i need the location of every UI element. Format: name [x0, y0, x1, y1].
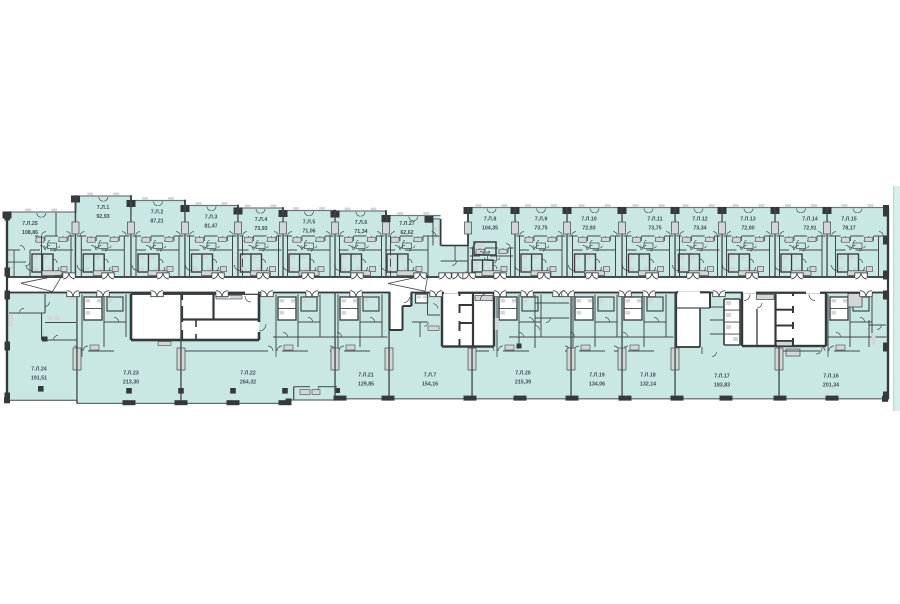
svg-text:72,00: 72,00	[741, 226, 754, 232]
svg-text:134,06: 134,06	[589, 382, 605, 388]
svg-text:129,85: 129,85	[358, 382, 374, 388]
svg-text:7.Л.21: 7.Л.21	[358, 373, 374, 379]
svg-text:7.Л.15: 7.Л.15	[841, 217, 857, 223]
svg-text:7.Л.17: 7.Л.17	[714, 374, 730, 380]
svg-text:7.Л.5: 7.Л.5	[303, 220, 316, 226]
svg-text:62,62: 62,62	[400, 230, 413, 236]
svg-text:71,34: 71,34	[354, 229, 367, 235]
svg-text:73,34: 73,34	[693, 226, 706, 232]
svg-text:7.Л.13: 7.Л.13	[740, 217, 756, 223]
svg-text:7.Л.11: 7.Л.11	[647, 217, 662, 223]
svg-text:73,93: 73,93	[254, 226, 267, 232]
svg-text:72,93: 72,93	[582, 226, 595, 232]
svg-text:92,93: 92,93	[96, 214, 109, 220]
svg-text:183,83: 183,83	[714, 383, 730, 389]
svg-text:72,91: 72,91	[803, 226, 816, 232]
svg-text:215,39: 215,39	[515, 380, 531, 386]
svg-text:7.Л.8: 7.Л.8	[484, 217, 497, 223]
svg-text:213,30: 213,30	[123, 380, 139, 386]
svg-text:71,06: 71,06	[302, 229, 315, 235]
svg-text:87,21: 87,21	[150, 219, 163, 225]
svg-text:7.Л.20: 7.Л.20	[515, 371, 531, 377]
svg-text:7.Л.19: 7.Л.19	[589, 373, 605, 379]
svg-text:7.Л.18: 7.Л.18	[640, 373, 656, 379]
svg-text:7.Л.1: 7.Л.1	[97, 205, 110, 211]
svg-text:81,47: 81,47	[204, 224, 217, 230]
svg-text:7.Л.24: 7.Л.24	[31, 367, 47, 373]
svg-text:104,35: 104,35	[482, 226, 498, 232]
svg-text:132,14: 132,14	[640, 382, 656, 388]
svg-text:201,34: 201,34	[823, 383, 839, 389]
svg-text:7.Л.10: 7.Л.10	[581, 217, 597, 223]
svg-text:7.Л.2: 7.Л.2	[151, 210, 164, 216]
svg-text:108,86: 108,86	[22, 230, 38, 236]
svg-text:73,75: 73,75	[534, 226, 547, 232]
svg-text:154,16: 154,16	[422, 382, 438, 388]
svg-text:7.Л.25: 7.Л.25	[22, 221, 38, 227]
svg-text:191,51: 191,51	[31, 376, 47, 382]
svg-text:7.Л.9: 7.Л.9	[535, 217, 548, 223]
svg-text:7.Л.7: 7.Л.7	[424, 373, 437, 379]
svg-text:7.Л.22: 7.Л.22	[240, 371, 256, 377]
svg-text:7.Л.27: 7.Л.27	[399, 221, 415, 227]
svg-text:73,75: 73,75	[648, 226, 661, 232]
svg-text:7.Л.6: 7.Л.6	[355, 220, 368, 226]
svg-text:7.Л.12: 7.Л.12	[692, 217, 708, 223]
svg-text:7.Л.23: 7.Л.23	[123, 371, 139, 377]
svg-text:7.Л.14: 7.Л.14	[802, 217, 818, 223]
svg-text:7.Л.16: 7.Л.16	[823, 374, 839, 380]
svg-text:7.Л.3: 7.Л.3	[205, 215, 218, 221]
svg-text:264,32: 264,32	[240, 380, 256, 386]
svg-text:78,17: 78,17	[842, 226, 855, 232]
svg-text:7.Л.4: 7.Л.4	[255, 217, 268, 223]
